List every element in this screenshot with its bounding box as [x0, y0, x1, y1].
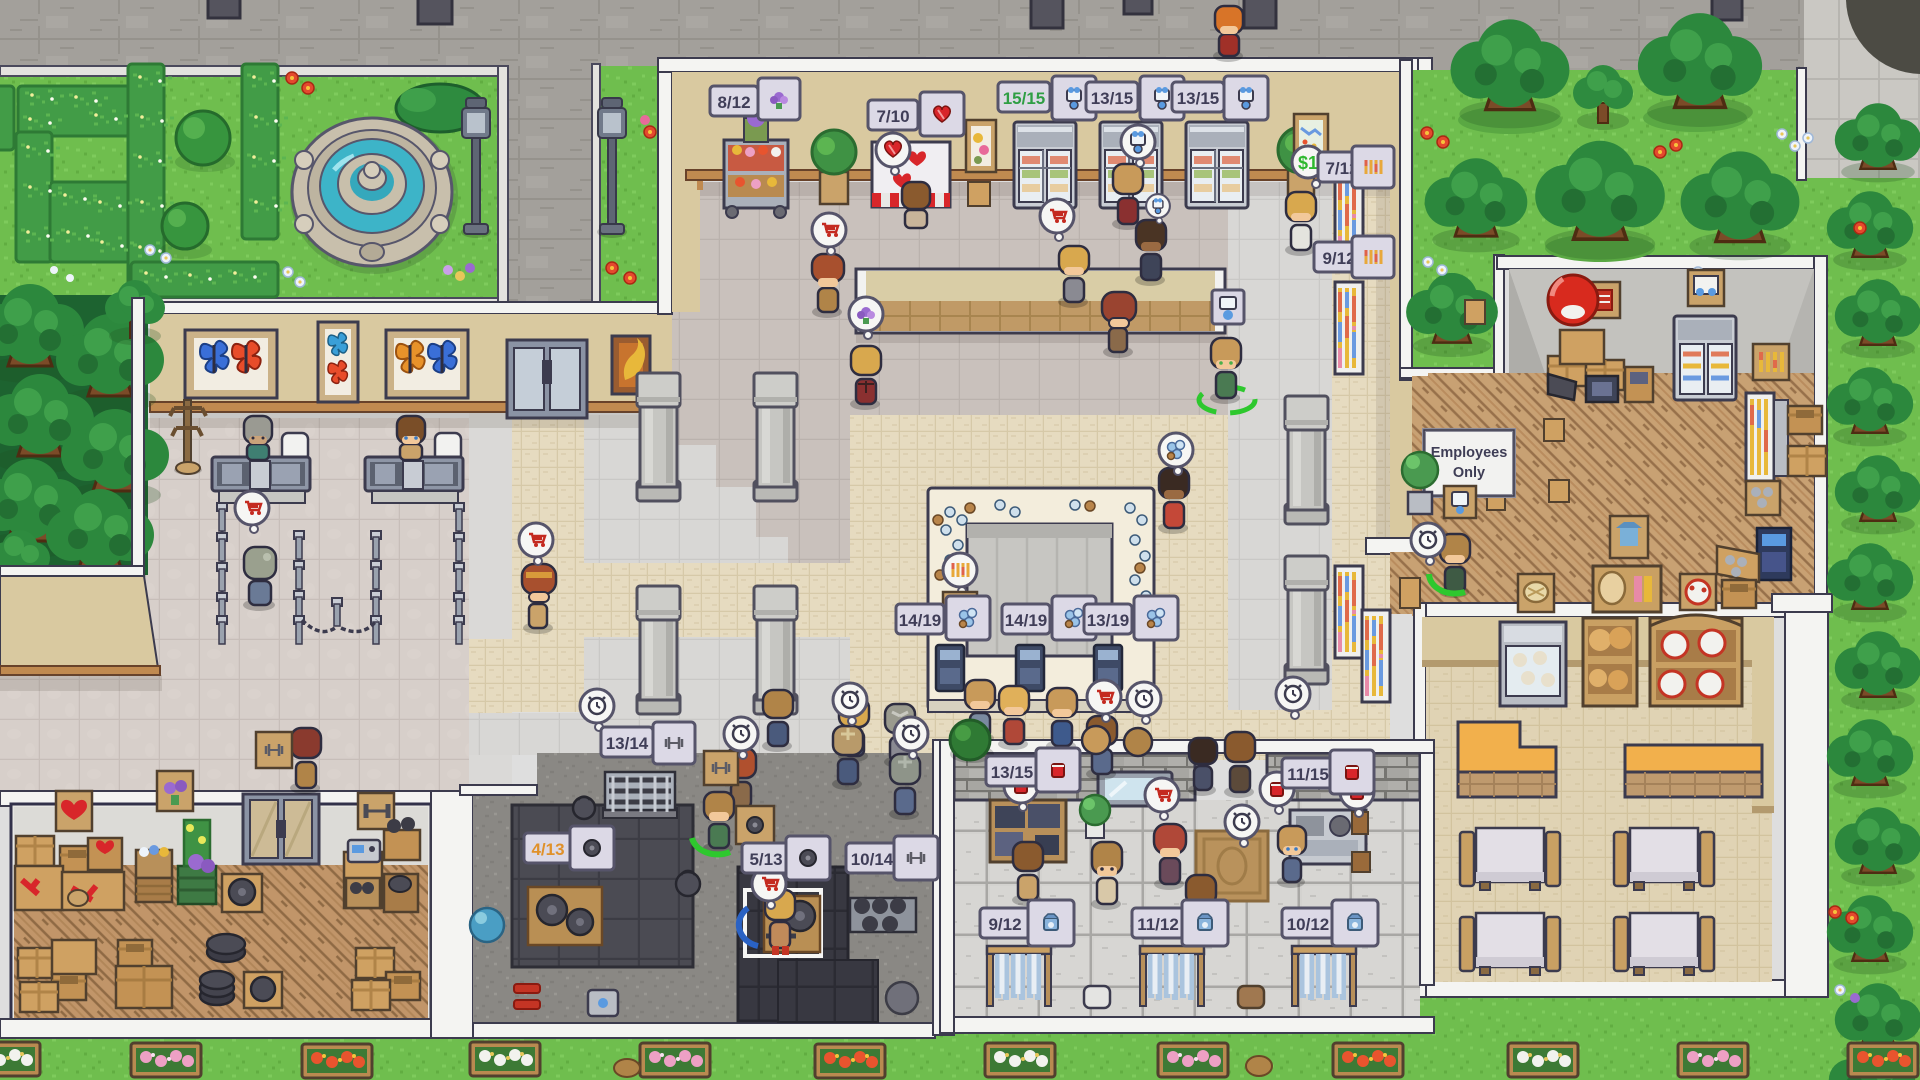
- svg-text:10/12: 10/12: [1287, 915, 1330, 934]
- svg-text:13/14: 13/14: [606, 734, 649, 753]
- svg-text:7/10: 7/10: [876, 107, 909, 126]
- svg-text:13/15: 13/15: [991, 763, 1034, 782]
- svg-text:8/12: 8/12: [717, 93, 750, 112]
- svg-text:11/12: 11/12: [1137, 915, 1179, 934]
- svg-text:13/19: 13/19: [1087, 611, 1130, 630]
- svg-text:13/15: 13/15: [1091, 89, 1134, 108]
- svg-text:14/19: 14/19: [1005, 611, 1048, 630]
- svg-text:11/15: 11/15: [1287, 765, 1329, 784]
- svg-text:5/13: 5/13: [749, 850, 782, 869]
- svg-text:9/12: 9/12: [988, 915, 1021, 934]
- svg-text:$1: $1: [1298, 153, 1318, 173]
- svg-text:15/15: 15/15: [1003, 89, 1046, 108]
- svg-text:10/14: 10/14: [851, 850, 894, 869]
- svg-text:Only: Only: [1453, 465, 1485, 481]
- svg-text:14/19: 14/19: [899, 611, 942, 630]
- svg-text:Employees: Employees: [1431, 445, 1508, 461]
- svg-text:4/13: 4/13: [531, 840, 564, 859]
- svg-text:13/15: 13/15: [1177, 89, 1220, 108]
